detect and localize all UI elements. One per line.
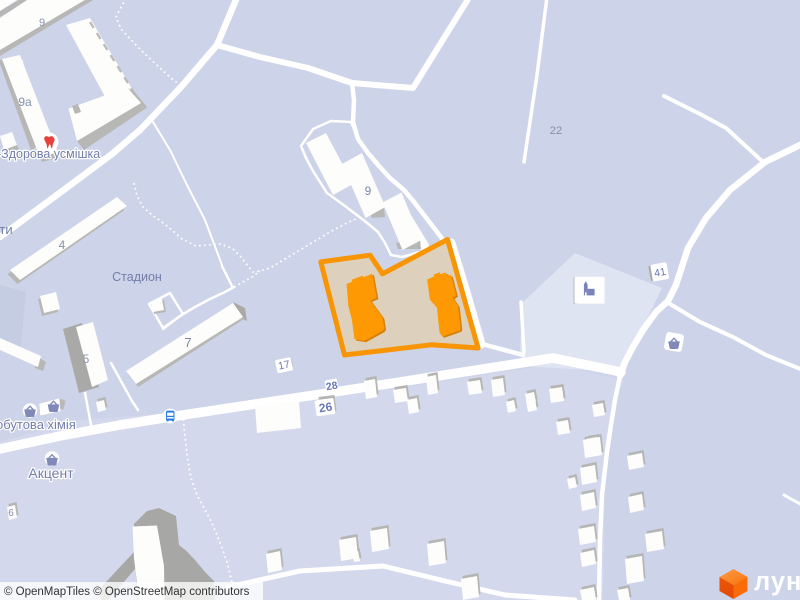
svg-text:© OpenMapTiles © OpenStreetMap: © OpenMapTiles © OpenStreetMap contribut… [4,586,250,598]
svg-text:9: 9 [365,184,372,198]
svg-text:лун: лун [754,568,800,596]
svg-text:5: 5 [83,352,90,366]
svg-text:4: 4 [59,238,66,252]
svg-text:22: 22 [550,125,562,137]
svg-text:обутова хімія: обутова хімія [0,417,76,432]
svg-text:-Здорова усмішка: -Здорова усмішка [0,147,100,161]
svg-text:26: 26 [318,400,333,416]
svg-text:28: 28 [325,379,339,393]
svg-text:ти: ти [0,222,13,237]
svg-text:Акцент: Акцент [28,465,74,481]
svg-text:6: 6 [8,508,14,519]
svg-text:9: 9 [39,17,45,29]
svg-text:7: 7 [184,335,191,350]
svg-text:Стадион: Стадион [112,270,162,284]
svg-text:41: 41 [653,266,667,280]
svg-text:9a: 9a [18,95,32,109]
